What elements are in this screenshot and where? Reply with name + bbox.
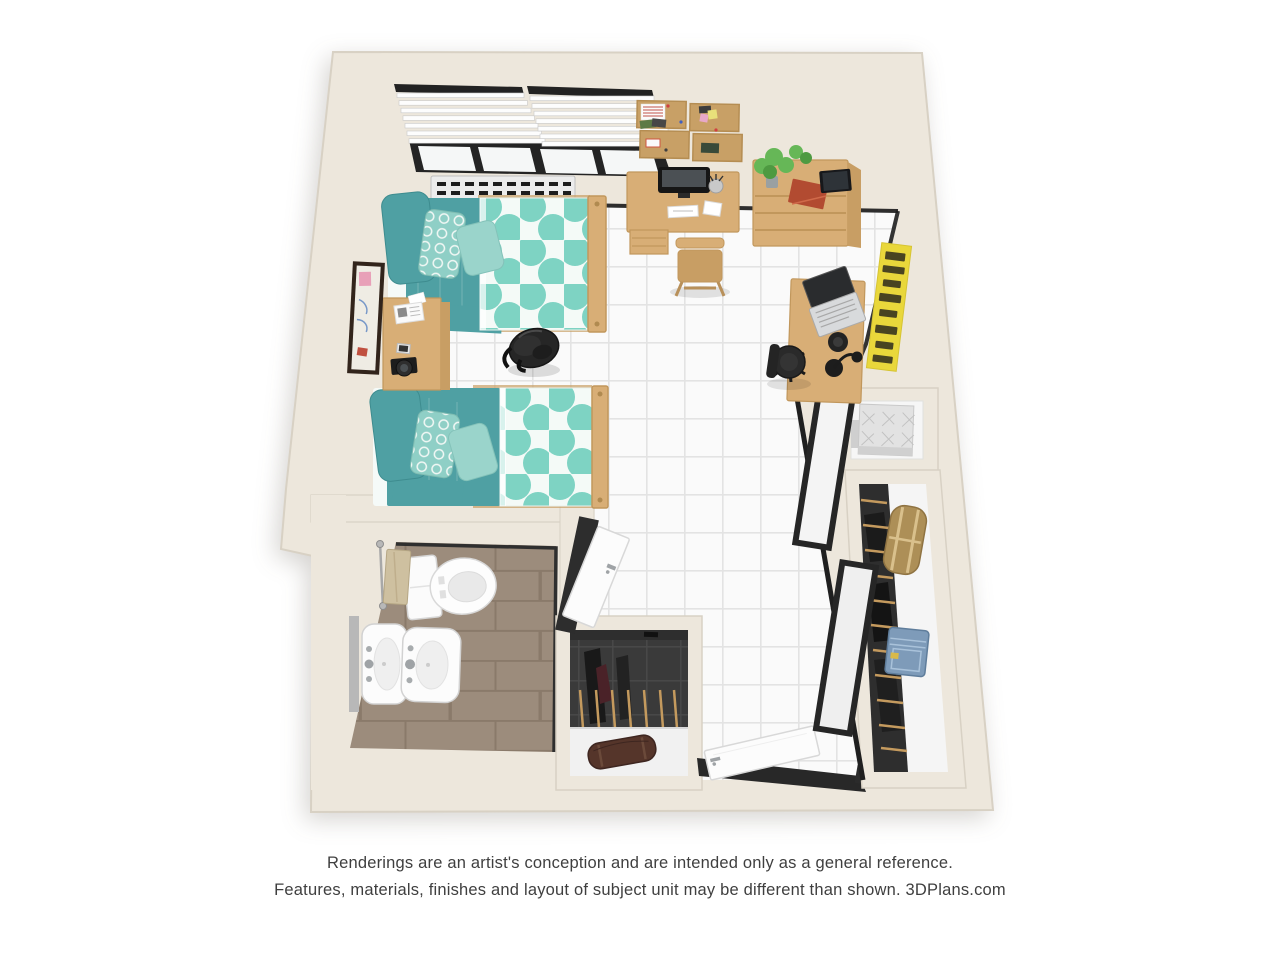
sink-icon	[401, 627, 462, 703]
window-pane	[540, 149, 598, 174]
tablet-icon	[819, 169, 852, 194]
disclaimer-line-2: Features, materials, finishes and layout…	[0, 877, 1280, 903]
bathroom-wall	[311, 495, 346, 790]
sink-backsplash	[349, 616, 359, 712]
paper	[703, 201, 722, 216]
pinned-note	[359, 272, 371, 286]
floor-plan-rendering	[0, 0, 1280, 960]
disclaimer-line-1: Renderings are an artist's conception an…	[0, 850, 1280, 876]
sink-icon	[362, 624, 407, 704]
folded-blanket	[858, 404, 915, 456]
patterned-duvet	[500, 388, 592, 506]
page: Renderings are an artist's conception an…	[0, 0, 1280, 960]
shoe-closet	[556, 616, 702, 790]
pen-cup-icon	[709, 179, 723, 193]
wall-picture-frame	[347, 261, 385, 375]
window-pane	[478, 147, 536, 172]
desk-chair	[670, 238, 730, 298]
pinned-note	[357, 347, 368, 356]
dresser	[753, 145, 861, 248]
closet-handle	[644, 632, 658, 637]
bed-footboard	[592, 386, 608, 508]
bed-footboard	[588, 196, 606, 332]
twin-bed-2	[369, 385, 608, 508]
desk-drawers	[630, 230, 668, 254]
window-pane	[418, 146, 476, 171]
bathroom-wall	[311, 748, 594, 790]
magazine	[394, 302, 424, 324]
bag-tag	[890, 652, 899, 659]
nightstand	[383, 292, 450, 390]
towel-bar	[377, 541, 411, 610]
phone-icon	[397, 343, 411, 353]
cork-boards	[637, 101, 742, 162]
denim-bag	[885, 627, 930, 677]
blanket-fold	[393, 479, 464, 505]
